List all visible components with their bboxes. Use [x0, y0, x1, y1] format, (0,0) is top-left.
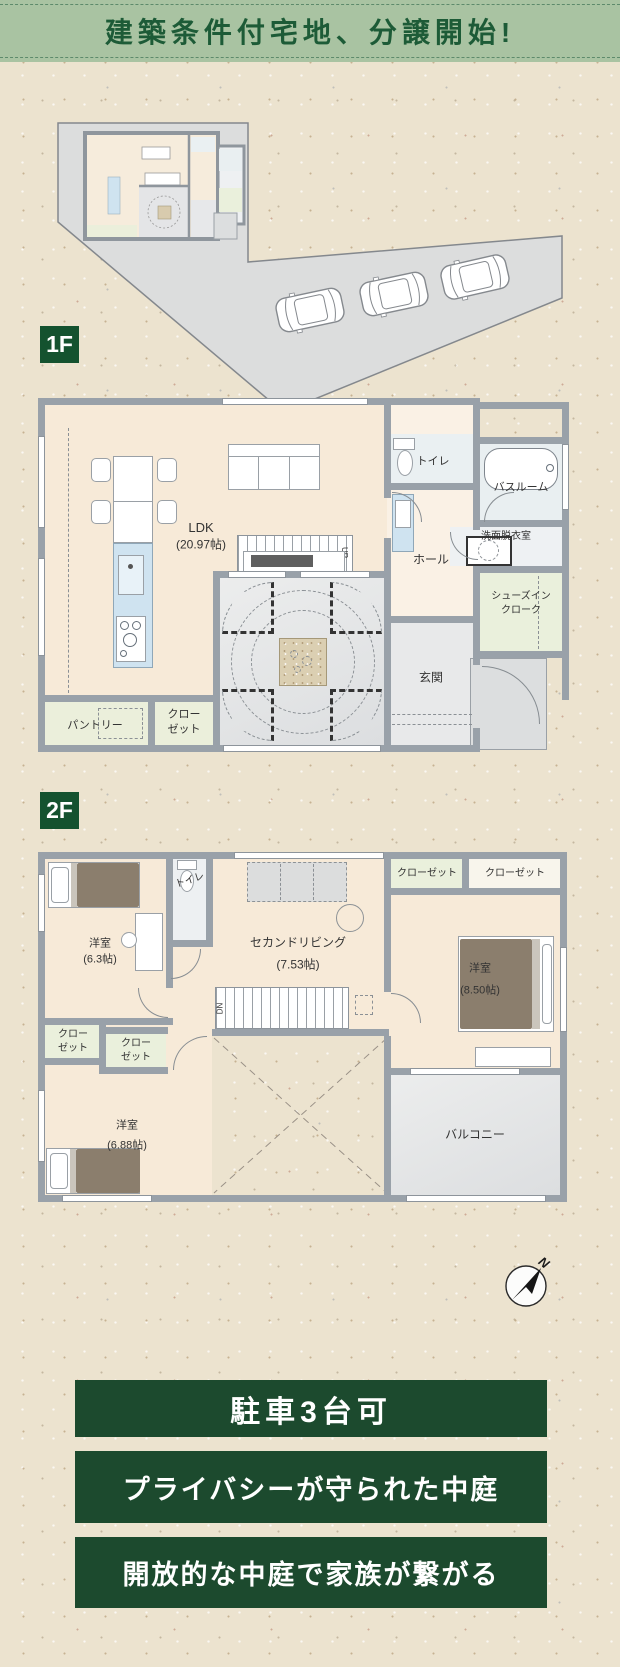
dining-chair — [157, 458, 177, 482]
wall — [99, 1027, 168, 1034]
label-ldk-size: (20.97帖) — [176, 537, 226, 554]
wall — [390, 616, 480, 623]
wall — [212, 1029, 389, 1036]
wall — [213, 571, 220, 750]
kitchen-sink — [118, 555, 144, 595]
label-second-living-size: (7.53帖) — [276, 957, 319, 974]
label-closet-a: クローゼット — [397, 867, 457, 881]
label-bedroom-a-size: (6.3帖) — [83, 952, 117, 967]
wall — [473, 402, 569, 409]
pillow — [51, 867, 69, 903]
stairs-dn-label: DN — [215, 1003, 224, 1015]
bed-sheet-strip — [532, 939, 540, 1029]
window — [38, 1090, 45, 1162]
pillow — [542, 944, 552, 1024]
wall — [480, 651, 569, 658]
label-bedroom-c-size: (6.88帖) — [107, 1138, 147, 1153]
wall — [384, 895, 391, 992]
window — [62, 1195, 152, 1202]
wall — [480, 437, 562, 444]
side-table — [336, 904, 364, 932]
stairs-2f — [215, 987, 349, 1029]
wall — [384, 1036, 391, 1195]
label-bathroom: バスルーム — [494, 480, 549, 495]
faucet — [128, 564, 133, 569]
railing-box — [355, 995, 373, 1015]
label-toilet-1f: トイレ — [417, 454, 450, 469]
kitchen-upper-cabinet-line — [68, 428, 69, 698]
sofa-dashed-divider — [280, 864, 281, 900]
wall — [473, 398, 480, 530]
toilet-tank — [177, 860, 197, 870]
label-pantry: パントリー — [67, 718, 123, 733]
label-hall: ホール — [413, 552, 449, 569]
window — [223, 745, 381, 752]
wall — [148, 695, 155, 750]
kitchen-counter — [113, 456, 153, 543]
window — [234, 852, 384, 859]
tv — [251, 555, 313, 567]
wall — [166, 940, 213, 947]
window — [228, 571, 286, 578]
dining-chair — [157, 500, 177, 524]
banner-parking: 駐車3台可 — [75, 1380, 547, 1437]
wall — [166, 852, 173, 947]
toilet-bowl — [397, 450, 413, 476]
sofa-back-line — [228, 456, 320, 457]
plant — [302, 656, 312, 666]
bed-blanket — [77, 863, 139, 907]
mini-floor-plan — [85, 133, 244, 239]
label-bedroom-b: 洋室 — [469, 961, 491, 976]
wall — [384, 483, 477, 490]
toilet-tank — [393, 438, 415, 450]
desk — [135, 913, 163, 971]
wall — [384, 888, 560, 895]
dining-chair — [91, 500, 111, 524]
window — [222, 398, 368, 405]
burner — [123, 633, 137, 647]
site-plan — [30, 95, 600, 440]
label-closet-b: クローゼット — [485, 867, 545, 881]
void-x-marks — [212, 1036, 389, 1195]
label-second-living: セカンドリビング — [250, 935, 346, 952]
kitchen-counter-line — [113, 501, 153, 502]
label-entrance: 玄関 — [419, 670, 443, 687]
wall — [38, 1058, 106, 1065]
wall — [480, 566, 562, 573]
window — [38, 874, 45, 932]
window — [560, 947, 567, 1032]
label-ldk: LDK — [188, 519, 213, 537]
label-bedroom-c: 洋室 — [116, 1118, 138, 1133]
label-bedroom-a: 洋室 — [89, 936, 111, 951]
label-bedroom-b-size: (8.50帖) — [460, 983, 500, 998]
banner-privacy: プライバシーが守られた中庭 — [75, 1451, 547, 1523]
wall — [99, 1067, 168, 1074]
entrance-step-line — [392, 724, 472, 725]
header-banner: 建築条件付宅地、分譲開始! — [0, 0, 620, 62]
flyer-page: 建築条件付宅地、分譲開始! — [0, 0, 620, 1667]
north-label: N — [536, 1254, 553, 1272]
plant — [294, 666, 301, 673]
banner-open-courtyard: 開放的な中庭で家族が繋がる — [75, 1537, 547, 1608]
desk-chair — [121, 932, 137, 948]
page-title: 建築条件付宅地、分譲開始! — [105, 11, 515, 51]
window — [410, 1068, 520, 1075]
label-shoe-closet: シューズインクローク — [491, 590, 551, 618]
burner — [120, 650, 127, 657]
entrance-step-line — [392, 714, 472, 715]
bathtub-drain — [546, 464, 554, 472]
label-closet-d: クローゼット — [121, 1037, 151, 1065]
burner — [120, 621, 129, 630]
sofa — [228, 444, 320, 490]
wall — [473, 728, 480, 752]
balcony-railing — [406, 1195, 546, 1202]
wall — [38, 695, 220, 702]
window — [38, 436, 45, 528]
wall — [206, 852, 213, 947]
window — [38, 558, 45, 656]
floor1-plan: UP — [38, 398, 569, 752]
burner — [132, 621, 141, 630]
sofa-dashed — [247, 862, 347, 902]
plant — [290, 650, 298, 658]
sofa-divider — [258, 456, 259, 490]
sofa-divider — [289, 456, 290, 490]
window — [562, 444, 569, 510]
label-balcony: バルコニー — [445, 1127, 505, 1144]
floor1-badge: 1F — [40, 326, 79, 363]
label-closet-c: クローゼット — [58, 1028, 88, 1056]
sofa-dashed-divider — [313, 864, 314, 900]
wall — [384, 538, 391, 750]
dining-chair — [91, 458, 111, 482]
label-closet-1f: クローゼット — [168, 708, 201, 739]
floor2-badge: 2F — [40, 792, 79, 829]
window — [300, 571, 370, 578]
pillow — [50, 1153, 68, 1189]
floor2-plan: DN 洋室 (6 — [38, 852, 567, 1202]
compass-icon: N — [496, 1246, 560, 1312]
closet-box — [475, 1047, 551, 1067]
label-washroom: 洗面脱衣室 — [481, 530, 531, 544]
bed-blanket — [76, 1149, 140, 1193]
